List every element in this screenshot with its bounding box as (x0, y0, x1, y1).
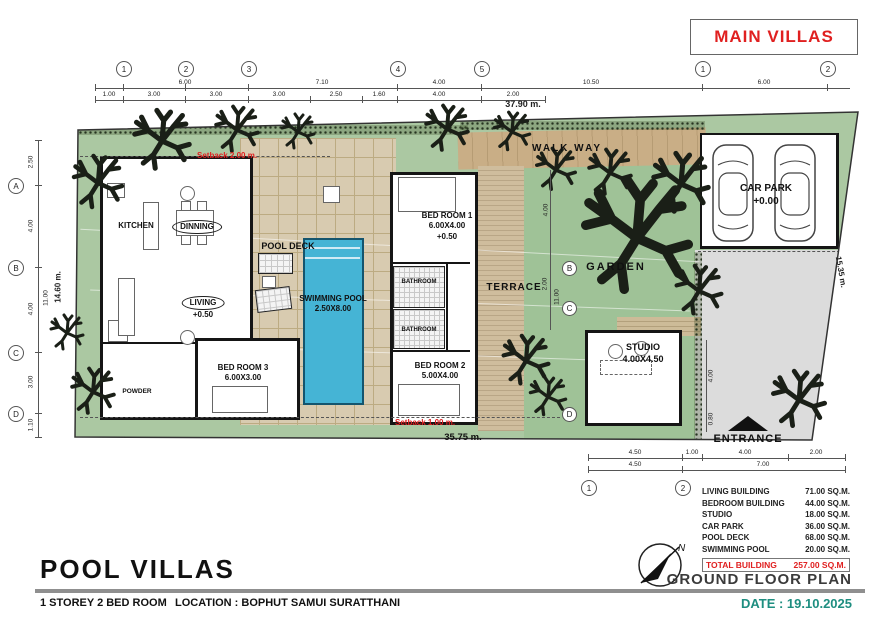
sheet-title: POOL VILLAS (40, 554, 235, 585)
bed-room-3-label: BED ROOM 3 6.00X3.00 (218, 363, 269, 384)
dim-label: 11.00 (43, 290, 50, 306)
area-table: LIVING BUILDING71.00 SQ.M. BEDROOM BUILD… (702, 486, 850, 572)
car-park-label: CAR PARK +0.00 (740, 182, 792, 208)
floor-plan-sheet: MAIN VILLAS 1 2 3 4 5 1 2 6.00 7.10 4.00… (0, 0, 873, 617)
garden-label: GARDEN (586, 260, 646, 274)
grid-bubble-mid-C: C (562, 301, 577, 316)
grid-bubble-A: A (8, 178, 24, 194)
grid-bubble-mid-B: B (562, 261, 577, 276)
main-villas-title-box: MAIN VILLAS (690, 19, 858, 55)
dinning-label: DINNING (172, 220, 222, 234)
dim-label: 10.50 (583, 79, 599, 86)
plan-name: GROUND FLOOR PLAN (640, 571, 852, 588)
entrance-label: ENTRANCE (713, 432, 782, 446)
powder-label: POWDER (122, 388, 151, 396)
bathroom-1-label: BATHROOM (402, 279, 437, 287)
grid-bubble-bottom-1: 1 (581, 480, 597, 496)
grid-bubble-2: 2 (178, 61, 194, 77)
dim-label: 11.00 (554, 289, 561, 305)
grid-bubble-r1: 1 (695, 61, 711, 77)
dim-total-width: 37.90 m. (505, 99, 541, 109)
entrance-arrow-icon (728, 416, 768, 431)
grid-bubble-D: D (8, 406, 24, 422)
sheet-spec: 1 STOREY 2 BED ROOM (40, 597, 167, 609)
dim-label: 3.00 (210, 91, 223, 98)
setback-bottom-label: Setback 1.00 m. (395, 418, 455, 428)
bed-room-1-label: BED ROOM 1 6.00X4.00 +0.50 (422, 211, 473, 242)
kitchen-label: KITCHEN (118, 221, 154, 231)
dim-label: 6.00 (758, 79, 771, 86)
dim-line-top-2 (95, 100, 545, 101)
sheet-location: LOCATION : BOPHUT SAMUI SURATTHANI (175, 597, 400, 609)
sun-lounger (258, 253, 293, 274)
setback-line-bottom (80, 417, 560, 418)
grid-bubble-B: B (8, 260, 24, 276)
grid-bubble-C: C (8, 345, 24, 361)
dim-label: 2.50 (330, 91, 343, 98)
swimming-pool-area (303, 238, 364, 405)
grid-bubble-1: 1 (116, 61, 132, 77)
dim-label: 7.00 (757, 461, 770, 468)
dim-label: 3.00 (273, 91, 286, 98)
dim-label: 4.00 (543, 204, 550, 217)
table-row: POOL DECK68.00 SQ.M. (702, 532, 850, 544)
table-row: CAR PARK36.00 SQ.M. (702, 521, 850, 533)
dim-label: 2.50 (28, 156, 35, 169)
sun-lounger (255, 286, 293, 313)
lounge-chair (180, 330, 195, 345)
dim-label: 4.50 (629, 461, 642, 468)
driveway-edge-line (698, 251, 850, 252)
footer-rule (35, 589, 865, 593)
bathroom-1-area (393, 266, 445, 308)
grid-bubble-4: 4 (390, 61, 406, 77)
kitchen-appliance (107, 183, 125, 198)
lounge-chair (180, 186, 195, 201)
dim-label: 2.00 (542, 278, 549, 291)
deck-table (323, 186, 340, 203)
dim-label: 1.60 (373, 91, 386, 98)
bed-room-2-label: BED ROOM 2 5.00X4.00 (415, 361, 466, 382)
terrace-area (478, 166, 524, 431)
studio-chair (608, 344, 623, 359)
table-total-row: TOTAL BUILDING257.00 SQ.M. (702, 558, 850, 572)
dim-label: 3.00 (148, 91, 161, 98)
plan-date: DATE : 19.10.2025 (640, 596, 852, 611)
dim-label: 4.00 (28, 220, 35, 233)
dim-label: 6.00 (179, 79, 192, 86)
bed-1 (398, 177, 456, 212)
dim-label: 4.00 (433, 79, 446, 86)
bed-3 (212, 386, 268, 413)
sofa (118, 278, 135, 336)
svg-text:N: N (678, 543, 686, 554)
studio-label: STUDIO 4.00X4.50 (622, 342, 663, 365)
swimming-pool-label: SWIMMING POOL 2.50X8.00 (299, 294, 367, 315)
dim-label: 0.80 (708, 413, 715, 426)
dining-chair (181, 201, 191, 211)
dim-total-left: 14.60 m. (54, 271, 63, 303)
dim-label: 1.00 (103, 91, 116, 98)
setback-top-label: Setback 2.00 m. (197, 151, 257, 161)
dim-label: 4.00 (28, 303, 35, 316)
main-villas-label: MAIN VILLAS (714, 27, 834, 47)
dining-chair (197, 201, 207, 211)
dim-label: 4.00 (433, 91, 446, 98)
hedge-top (78, 125, 468, 135)
dining-chair (181, 235, 191, 245)
table-row: LIVING BUILDING71.00 SQ.M. (702, 486, 850, 498)
dim-label: 7.10 (316, 79, 329, 86)
terrace-label: TERRACE (486, 281, 541, 294)
living-label: LIVING +0.50 (182, 296, 225, 321)
table-row: BEDROOM BUILDING44.00 SQ.M. (702, 498, 850, 510)
dim-total-right: 15.35 m. (834, 256, 848, 289)
hedge-walkway (460, 121, 705, 130)
dim-label: 4.50 (629, 449, 642, 456)
hedge-drive-edge (694, 252, 702, 440)
grid-bubble-3: 3 (241, 61, 257, 77)
dim-line-top-1 (95, 88, 850, 89)
dim-label: 3.00 (28, 376, 35, 389)
dim-label: 4.00 (739, 449, 752, 456)
pool-deck-label: POOL DECK (261, 241, 314, 253)
walkway-label: WALK WAY (532, 142, 602, 155)
grid-bubble-r2: 2 (820, 61, 836, 77)
dining-chair (197, 235, 207, 245)
deck-side-table (262, 276, 276, 288)
table-row: SWIMMING POOL20.00 SQ.M. (702, 544, 850, 556)
grid-bubble-mid-D: D (562, 407, 577, 422)
dim-label: 2.00 (507, 91, 520, 98)
dim-label: 1.10 (28, 419, 35, 432)
bathroom-2-label: BATHROOM (402, 327, 437, 335)
dim-label: 4.00 (708, 370, 715, 383)
table-row: STUDIO18.00 SQ.M. (702, 509, 850, 521)
grid-bubble-bottom-2: 2 (675, 480, 691, 496)
dim-label: 1.00 (686, 449, 699, 456)
grid-bubble-5: 5 (474, 61, 490, 77)
dim-label: 2.00 (810, 449, 823, 456)
bed-2 (398, 384, 460, 416)
bottom-width-label: 35.75 m. (444, 432, 482, 444)
